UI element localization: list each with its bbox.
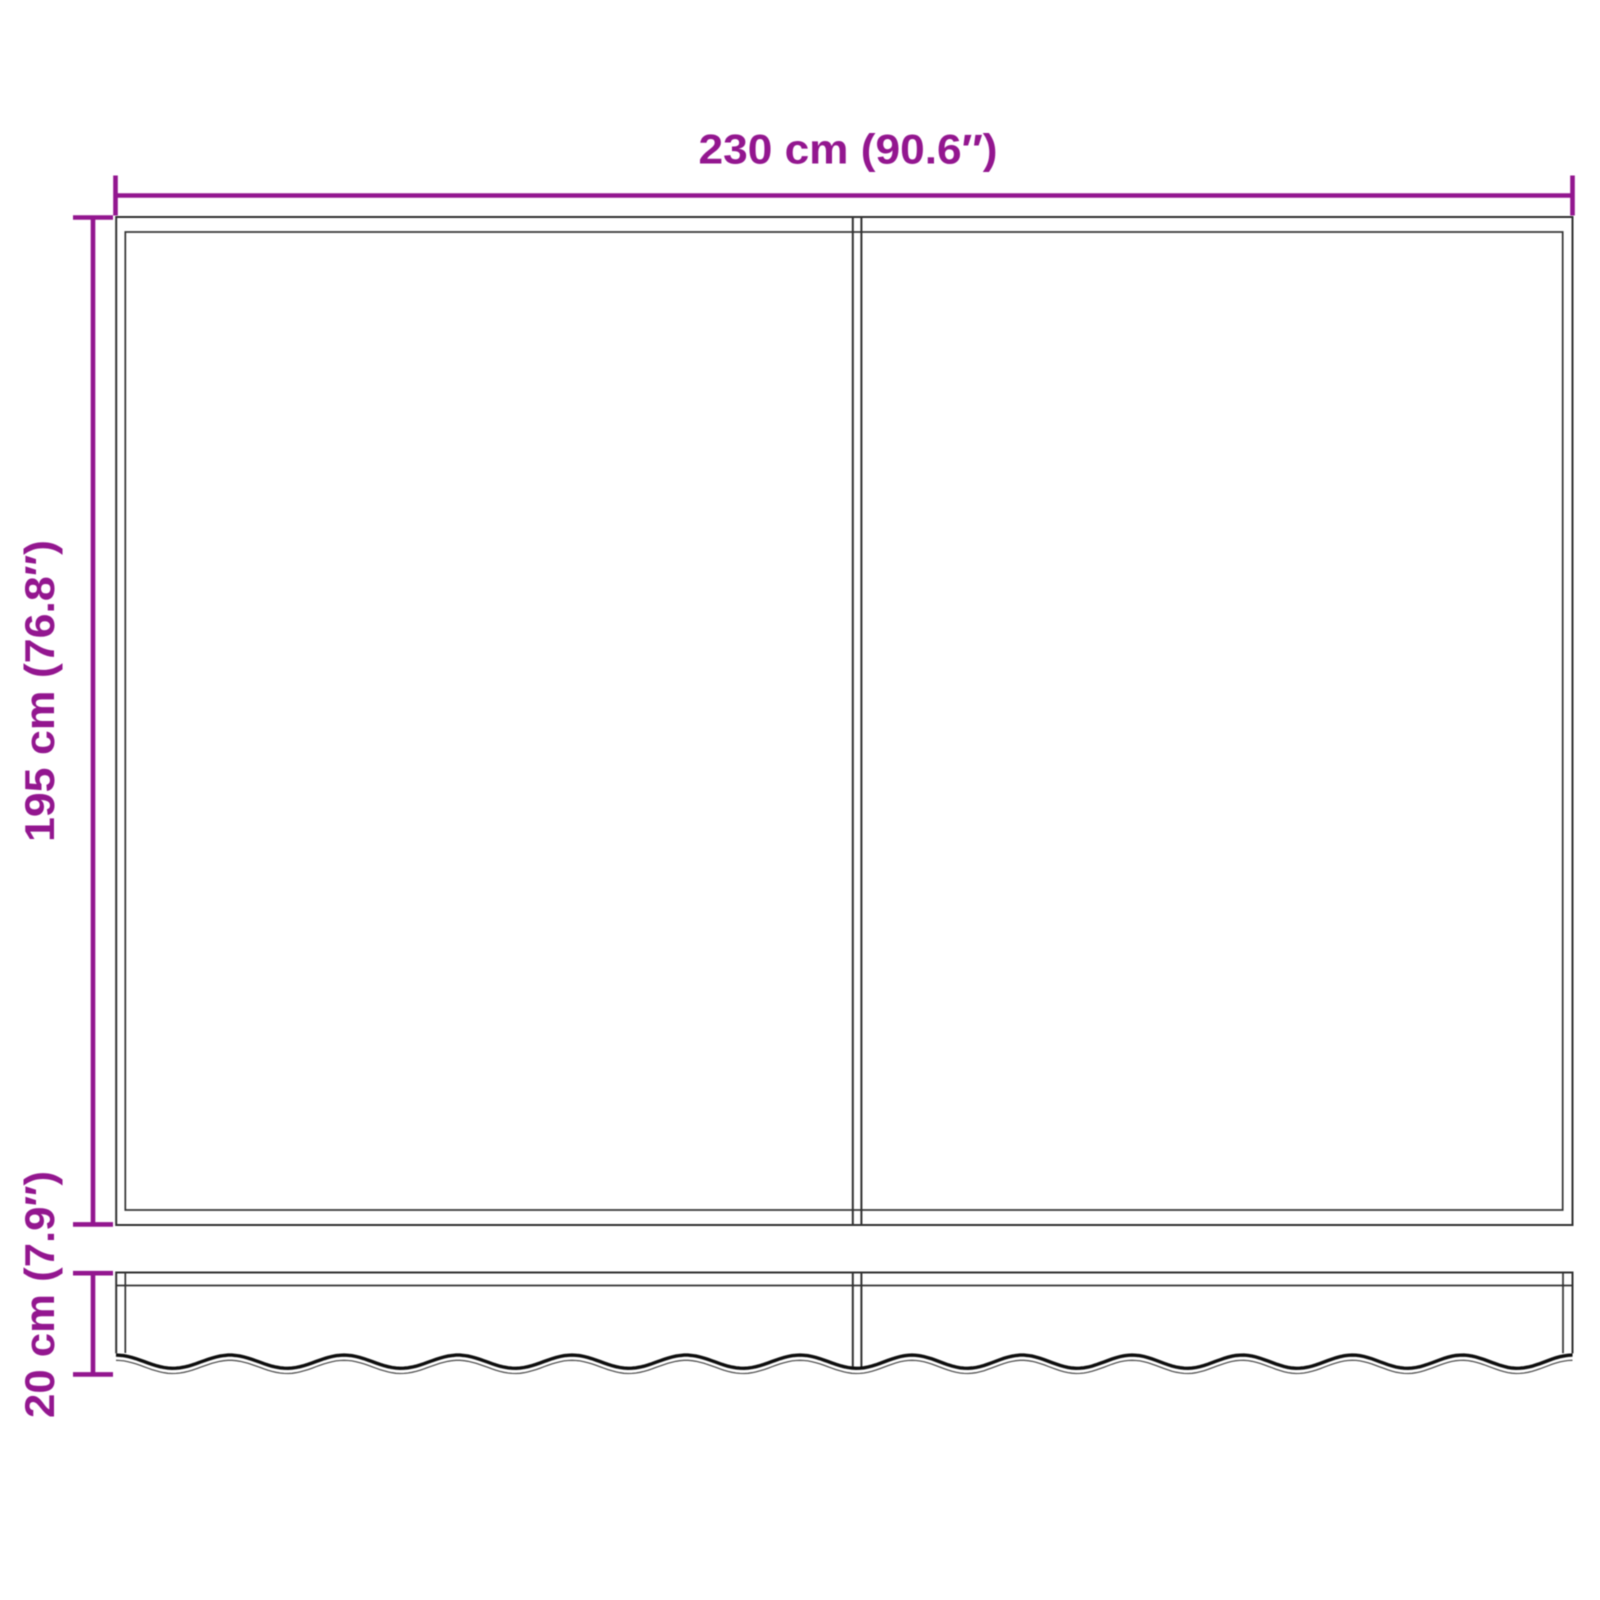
svg-text:195 cm (76.8″): 195 cm (76.8″): [16, 540, 63, 842]
svg-text:230 cm (90.6″): 230 cm (90.6″): [699, 126, 998, 173]
svg-text:20 cm (7.9″): 20 cm (7.9″): [16, 1171, 63, 1418]
